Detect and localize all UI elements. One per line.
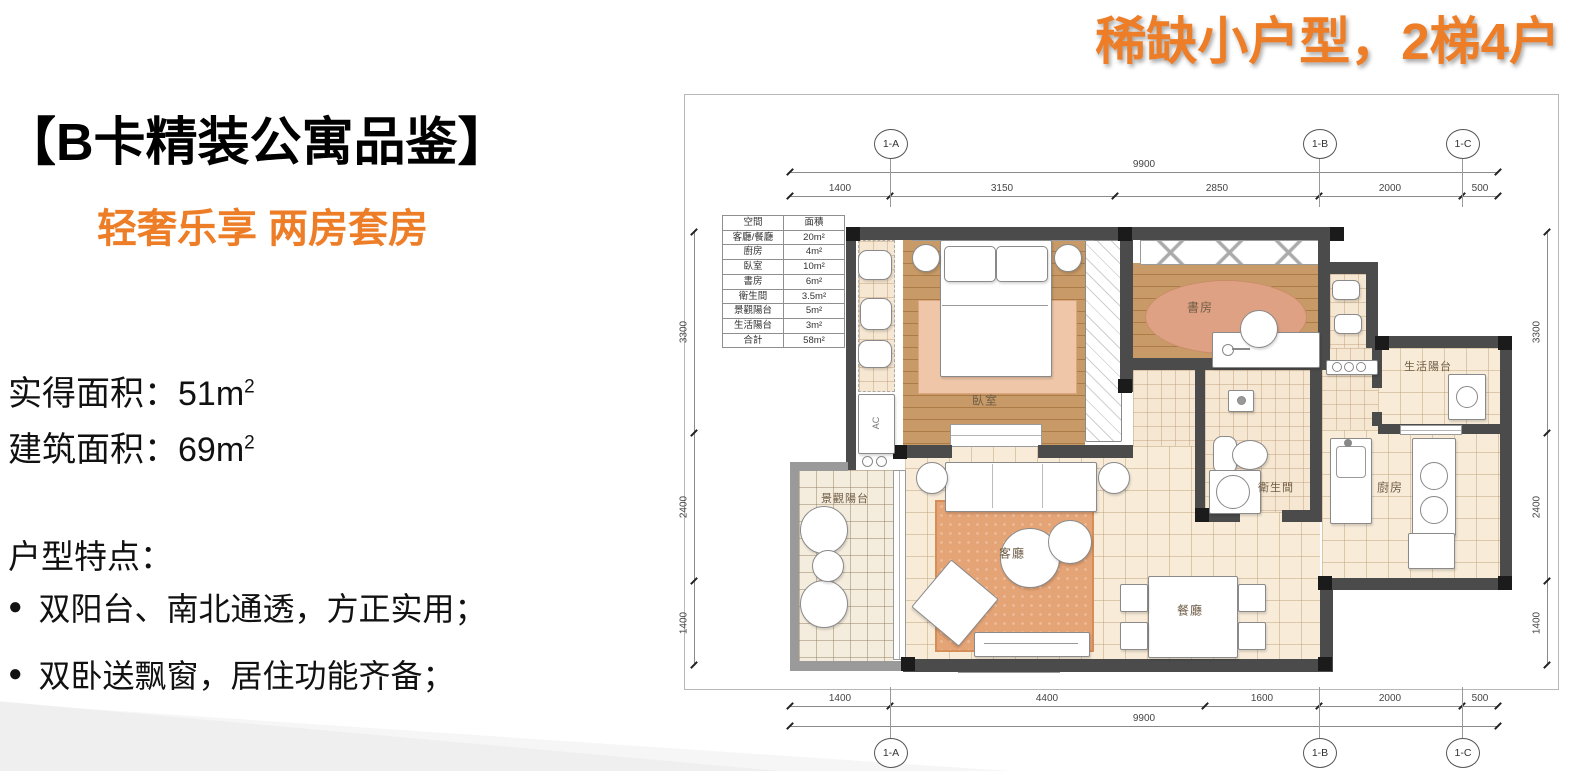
balcony-table [812,550,844,582]
sofa-cushion-line [1042,464,1043,508]
dim-tick [1494,722,1502,730]
area-table: 空間面積客廳/餐廳20m²廚房4m²臥室10m²書房6m²衛生間3.5m²景觀陽… [722,215,845,348]
wardrobe [1085,240,1122,442]
dim-top-segment: 500 [1472,183,1489,194]
sofa-cushion-line [992,464,993,508]
dim-tick [690,661,698,669]
tv-bench-line [984,643,1078,644]
grid-line-stem [890,157,891,207]
balcony-rail-bottom [790,661,903,671]
nightstand [1054,244,1082,272]
counter-hole [1356,362,1366,372]
side-table [916,462,948,494]
wall-post [846,227,860,241]
kitchen-sink-basin [1336,446,1366,478]
wall-post [901,657,915,671]
nightstand [912,244,940,272]
dining-chair [1120,622,1148,650]
grid-line-stem [1319,687,1320,738]
wall-kitchen-bottom [1333,578,1512,590]
wall-post [1375,336,1389,350]
dim-tick [1543,661,1551,669]
grid-bubble: 1-A [874,129,908,159]
area-table-row: 衛生間3.5m² [723,289,845,304]
coffee-table [1048,520,1092,564]
area-table-cell: 客廳/餐廳 [723,230,784,245]
area-table-cell: 3.5m² [784,289,845,304]
dim-bottom-segment: 500 [1472,693,1489,704]
wall-utility-top [1375,336,1512,348]
label-dining: 餐廳 [1177,602,1203,619]
dim-line-bottom-overall [790,726,1498,727]
area-table-cell: 10m² [784,260,845,275]
dim-line-left [694,232,695,665]
utility-window [1400,425,1462,435]
wall-post [893,445,907,459]
area-table-cell: 臥室 [723,260,784,275]
dim-left-segment: 2400 [679,496,690,518]
wall-post [1498,576,1512,590]
bedroom-bay-window [950,424,1042,447]
grid-bubble: 1-B [1303,129,1337,159]
wall-bedroom-bottom-a [905,445,952,458]
dim-bottom-segment: 2000 [1379,693,1401,704]
dim-right-segment: 3300 [1532,321,1543,343]
area-table-cell: 58m² [784,333,845,348]
dim-tick [1494,168,1502,176]
ac-vent [876,456,887,467]
desk-lamp-arm [1232,348,1250,350]
wall-post [1318,657,1332,671]
area-table-cell: 20m² [784,230,845,245]
area-table-header: 空間 [723,216,784,231]
label-utility-balcony: 生活陽台 [1404,358,1452,374]
dim-bottom-segment: 1400 [829,693,851,704]
area-table-cell: 合計 [723,333,784,348]
desk-chair [1240,310,1278,348]
kitchen-cabinet [1408,533,1455,569]
grid-bubble: 1-C [1446,738,1480,768]
balcony-rail-top [790,462,848,471]
dining-chair [1238,622,1266,650]
desk-lamp [1222,344,1234,356]
planter-plant [860,298,892,330]
wall-kitchen-left [1310,348,1322,522]
wall-bottom [903,659,1333,672]
bed-pillow [996,246,1048,282]
area-table-cell: 生活陽台 [723,318,784,333]
dim-right-segment: 2400 [1532,496,1543,518]
tv-bench [974,632,1090,657]
bed-pillow [944,246,996,282]
dim-tick [1494,192,1502,200]
area-table-row: 客廳/餐廳20m² [723,230,845,245]
dim-top-segment: 1400 [829,183,851,194]
area-table-row: 生活陽台3m² [723,318,845,333]
toilet-bowl [1232,440,1268,470]
dim-bottom-overall: 9900 [1133,713,1155,724]
label-study: 書房 [1187,299,1213,316]
dim-right-segment: 1400 [1532,612,1543,634]
area-table-row: 合計58m² [723,333,845,348]
ac-vent [862,456,873,467]
dining-chair [1238,584,1266,612]
dim-top-segment: 2000 [1379,183,1401,194]
counter-hole [1344,362,1354,372]
sofa [945,462,1097,512]
area-table-cell: 4m² [784,245,845,260]
label-view-balcony: 景觀陽台 [821,490,869,506]
dim-tick [1494,702,1502,710]
grid-line-stem [1319,157,1320,207]
dim-line-top-segments [790,196,1498,197]
floor-hallway [1133,370,1195,455]
area-table-row: 景觀陽台5m² [723,304,845,319]
dim-left-segment: 1400 [679,612,690,634]
study-bay-window [1140,240,1320,265]
area-table-cell: 衛生間 [723,289,784,304]
bed-fold-line [942,305,1048,306]
label-kitchen: 廚房 [1377,479,1403,496]
dim-bottom-segment: 1600 [1251,693,1273,704]
wall-top [850,227,1342,240]
side-table [1098,462,1130,494]
washer-door [1456,386,1478,408]
grid-bubble: 1-A [874,738,908,768]
area-table-cell: 5m² [784,304,845,319]
balcony-sliding-window [893,470,906,660]
label-living: 客廳 [999,545,1025,562]
balcony-rail-left [790,462,799,671]
area-table-row: 廚房4m² [723,245,845,260]
planter-plant [858,340,892,368]
wall-right-outer [1500,336,1512,590]
area-table-cell: 6m² [784,274,845,289]
label-bathroom: 衛生間 [1258,479,1294,495]
wall-bedroom-bottom-b [1038,445,1133,458]
area-table-row: 臥室10m² [723,260,845,275]
dim-line-top-overall [790,172,1498,173]
area-table-cell: 廚房 [723,245,784,260]
planter-plant [858,250,892,280]
wall-post [1318,576,1332,590]
wall-post [1498,336,1512,350]
wall-post [1195,508,1209,522]
ac-label: AC [871,417,881,430]
wall-post [1118,379,1132,393]
entry-cabinet [1334,314,1362,334]
area-table-cell: 景觀陽台 [723,304,784,319]
dining-chair [1120,584,1148,612]
wall-post [1118,227,1132,241]
grid-line-stem [890,687,891,738]
dim-bottom-segment: 4400 [1036,693,1058,704]
wall-post [1330,227,1344,241]
grid-bubble: 1-C [1446,129,1480,159]
stove-burner [1420,496,1448,524]
balcony-chair [800,580,848,628]
area-table-row: 書房6m² [723,274,845,289]
floorplan: 空間面積客廳/餐廳20m²廚房4m²臥室10m²書房6m²衛生間3.5m²景觀陽… [0,0,1570,771]
kitchen-faucet [1344,439,1352,447]
dim-top-segment: 2850 [1206,183,1228,194]
counter-hole [1332,362,1342,372]
bath-sink [1216,475,1250,509]
dim-top-overall: 9900 [1133,159,1155,170]
area-table-header: 面積 [784,216,845,231]
grid-line-stem [1462,687,1463,738]
grid-bubble: 1-B [1303,738,1337,768]
grid-line-stem [1462,157,1463,207]
dim-top-segment: 3150 [991,183,1013,194]
label-bedroom: 臥室 [972,392,998,409]
wall-bedroom-right [1120,227,1133,392]
dim-line-bottom-segments [790,706,1498,707]
wall-bath-left [1195,370,1205,510]
dim-line-right [1547,232,1548,665]
shower-dot [1237,396,1246,405]
area-table-cell: 3m² [784,318,845,333]
dim-left-segment: 3300 [679,321,690,343]
entry-cabinet [1332,280,1360,300]
balcony-chair [800,506,848,554]
wall-left-outer [846,227,856,470]
area-table-cell: 書房 [723,274,784,289]
stove-burner [1420,462,1448,490]
wall-hall-utility-b [1372,412,1382,426]
